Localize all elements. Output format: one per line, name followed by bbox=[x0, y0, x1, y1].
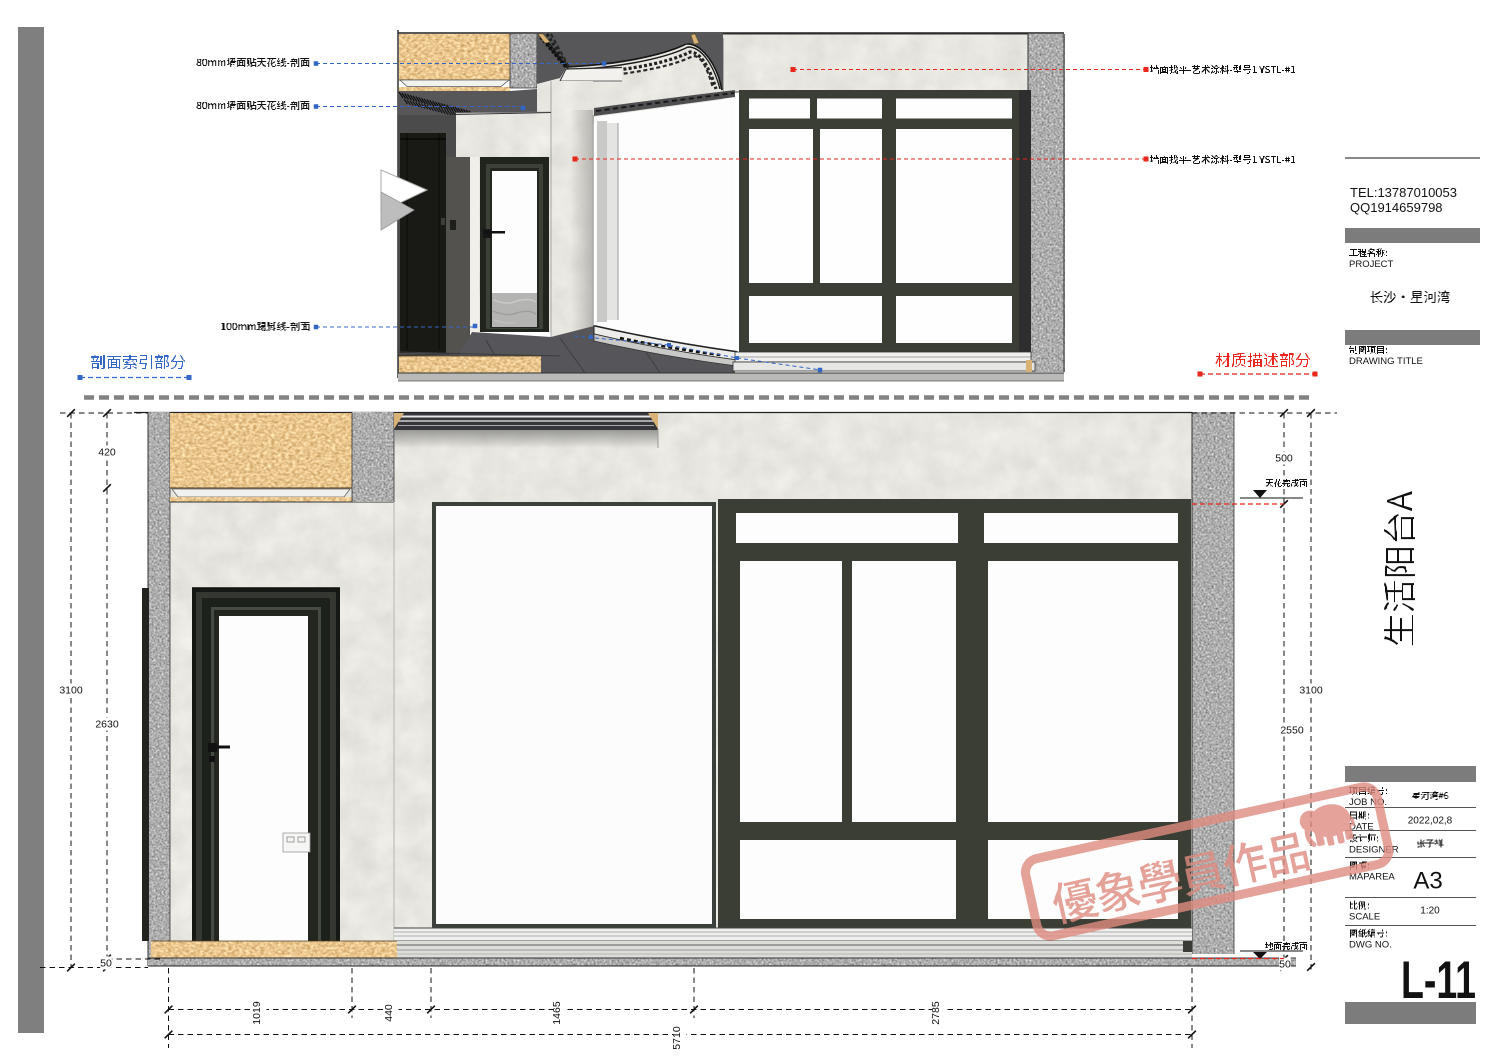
svg-text:420: 420 bbox=[98, 447, 116, 459]
svg-text:L-11: L-11 bbox=[1401, 951, 1476, 1010]
svg-text:2630: 2630 bbox=[95, 719, 119, 731]
svg-text:DRAWING TITLE: DRAWING TITLE bbox=[1349, 356, 1423, 367]
svg-text:3100: 3100 bbox=[59, 685, 83, 697]
svg-text:3100: 3100 bbox=[1299, 685, 1323, 697]
svg-text:QQ1914659798: QQ1914659798 bbox=[1350, 200, 1443, 215]
svg-text:2785: 2785 bbox=[930, 1001, 942, 1025]
svg-text:50: 50 bbox=[100, 958, 112, 970]
svg-text:500: 500 bbox=[1275, 453, 1293, 465]
svg-text:5710: 5710 bbox=[671, 1026, 683, 1050]
svg-text:PROJECT: PROJECT bbox=[1349, 259, 1394, 270]
svg-text:50: 50 bbox=[1279, 959, 1291, 971]
svg-text:DWG NO.: DWG NO. bbox=[1349, 940, 1392, 951]
svg-text:1465: 1465 bbox=[551, 1001, 563, 1025]
svg-text:2022,02,8: 2022,02,8 bbox=[1408, 816, 1453, 827]
svg-text:A3: A3 bbox=[1413, 868, 1442, 895]
svg-text:1:20: 1:20 bbox=[1420, 906, 1440, 917]
svg-text:TEL:13787010053: TEL:13787010053 bbox=[1350, 185, 1457, 200]
svg-text:440: 440 bbox=[383, 1004, 395, 1022]
svg-text:1019: 1019 bbox=[251, 1001, 263, 1025]
svg-text:SCALE: SCALE bbox=[1349, 912, 1380, 923]
svg-text:2550: 2550 bbox=[1280, 725, 1304, 737]
